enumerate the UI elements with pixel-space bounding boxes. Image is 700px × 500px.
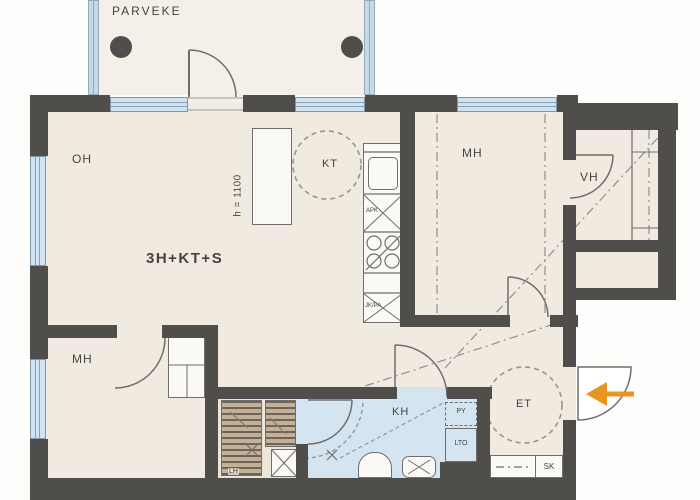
room-label-bedroom-bottom: MH <box>72 352 93 366</box>
bench-ticks <box>230 412 286 434</box>
room-label-bathroom: KH <box>392 406 409 418</box>
room-label-bedroom-top: MH <box>462 146 483 160</box>
counter-segments <box>363 152 403 293</box>
wall <box>658 103 676 300</box>
slope-line <box>347 321 563 392</box>
wall <box>205 325 218 490</box>
wall <box>218 387 397 399</box>
balcony-label: PARVEKE <box>112 4 182 18</box>
wall <box>30 266 48 359</box>
balcony-wall <box>364 0 375 95</box>
window <box>457 97 557 112</box>
balcony-pillar <box>110 36 132 58</box>
wall <box>440 462 477 478</box>
window <box>295 97 365 112</box>
toilet-cross <box>408 460 430 474</box>
balcony-wall <box>88 0 99 95</box>
wall <box>296 444 308 478</box>
wall <box>563 252 576 367</box>
wall <box>30 325 117 338</box>
bedroom-door-arc <box>115 338 165 388</box>
floor-plan: PARVEKE OH 3H+KT+S h = 1100 KT MH VH MH … <box>0 0 700 500</box>
wall <box>243 95 295 112</box>
floor-drain-icon <box>247 445 337 460</box>
stove-burners-icon <box>366 236 400 270</box>
room-label-living: OH <box>72 152 92 166</box>
balcony-pillar <box>341 36 363 58</box>
fixture-label-heat-recovery: LTO <box>445 440 477 447</box>
bedroom-top-door-arc <box>508 277 548 317</box>
fixture-label-dishwasher: APK <box>366 208 378 214</box>
counter-height-label: h = 1100 <box>233 160 244 232</box>
closet-rails <box>632 130 658 240</box>
apartment-type-label: 3H+KT+S <box>146 250 223 267</box>
room-label-closet: VH <box>580 170 599 184</box>
window <box>30 156 46 266</box>
wall <box>30 478 576 500</box>
shower-arc <box>305 400 363 458</box>
fixture-label-washer: PY <box>445 408 477 415</box>
wall <box>402 315 510 327</box>
wall <box>563 420 576 490</box>
wall <box>563 112 576 160</box>
sauna-door-arc <box>308 400 352 444</box>
wall <box>477 387 490 478</box>
balcony-door-arc <box>189 50 236 97</box>
window <box>110 97 188 112</box>
window <box>30 359 46 439</box>
wall <box>30 95 48 156</box>
fixture-label-cleaning-closet: SK <box>535 462 563 471</box>
sauna-bench-label: LH <box>228 468 239 475</box>
wall <box>400 95 415 327</box>
heater-cross <box>272 450 296 476</box>
room-label-kitchen: KT <box>310 158 350 170</box>
wardrobe-shelves <box>168 365 205 397</box>
bathroom-door-arc <box>395 345 447 397</box>
room-label-entry: ET <box>510 398 538 410</box>
wall <box>563 288 676 300</box>
fixture-label-fridge: JK/PA <box>365 303 381 309</box>
